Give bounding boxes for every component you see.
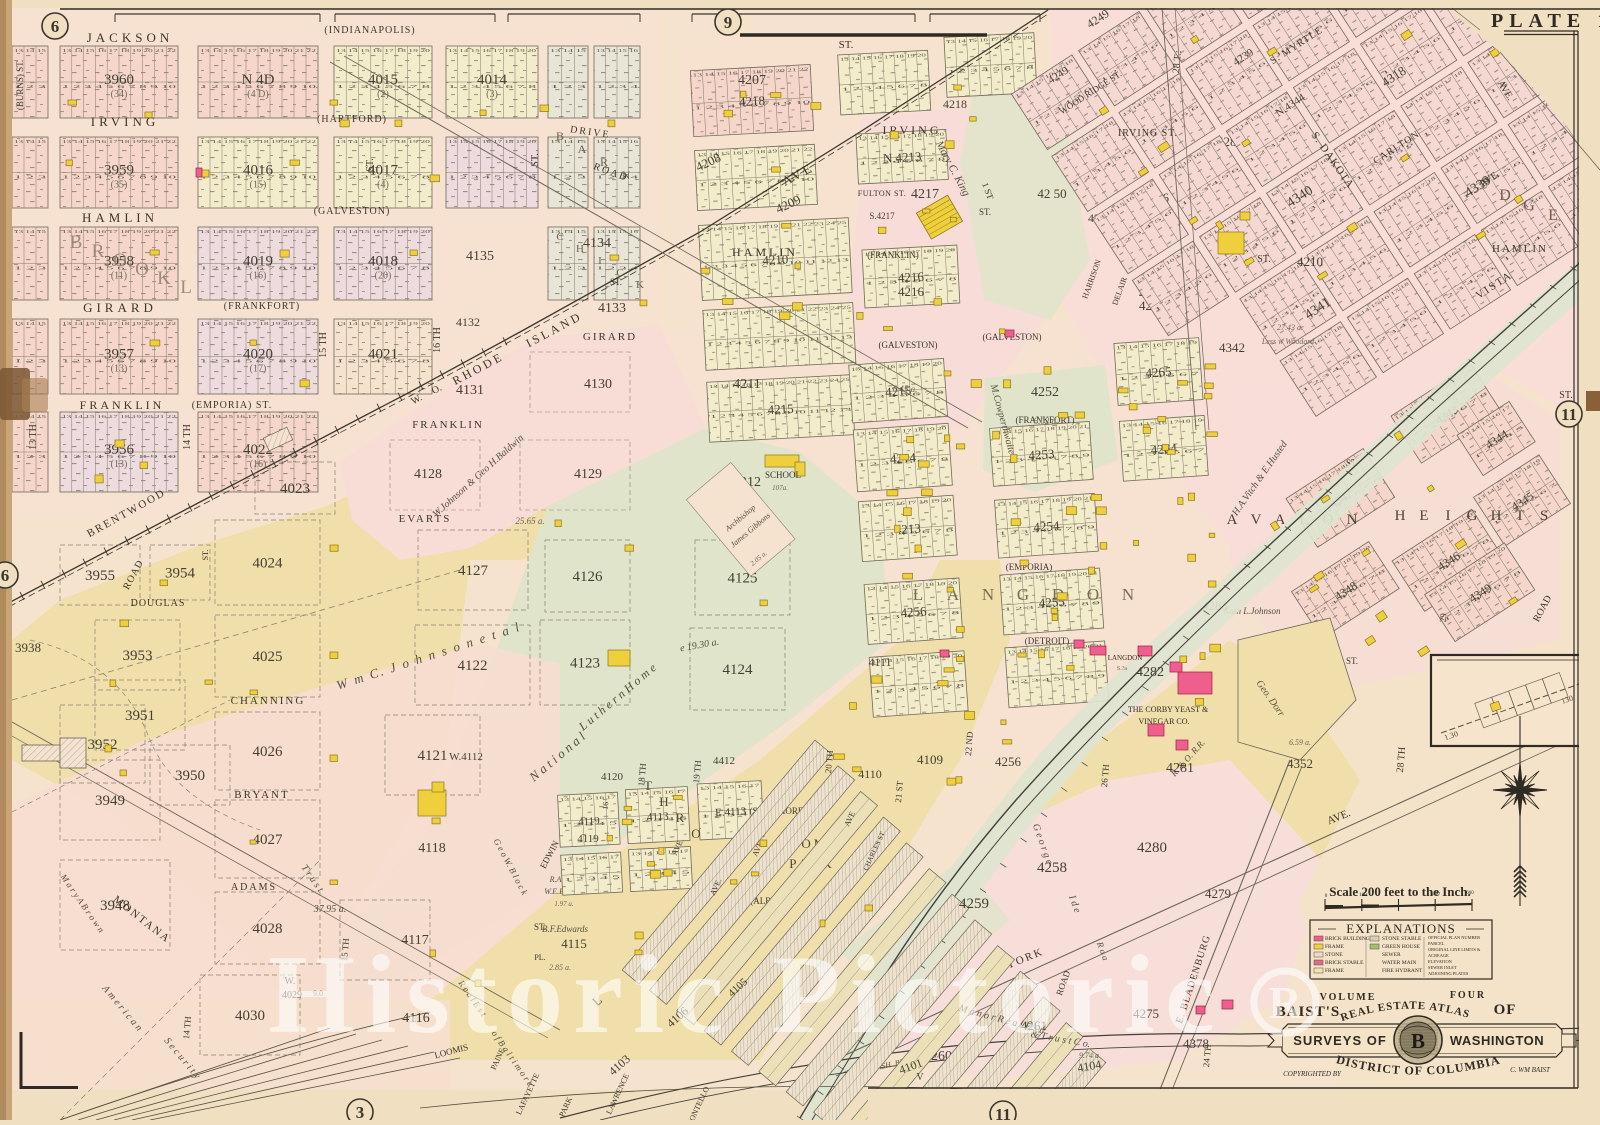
svg-text:G: G [1523,197,1535,214]
svg-text:3938: 3938 [15,640,41,655]
svg-text:C: C [616,267,623,279]
svg-text:(3): (3) [486,89,498,100]
svg-text:4132: 4132 [456,315,480,329]
svg-text:G: G [1467,508,1478,524]
svg-text:S.4217: S.4217 [869,211,895,221]
svg-text:4024: 4024 [253,556,284,572]
svg-text:S.?a: S.?a [1117,666,1128,672]
svg-text:(4 D): (4 D) [247,89,268,100]
svg-text:(15): (15) [250,180,267,191]
svg-text:ORIGINAL LINE LIMITS &: ORIGINAL LINE LIMITS & [1428,947,1481,952]
svg-text:(20): (20) [375,271,392,282]
svg-text:ADAMS: ADAMS [231,882,277,893]
svg-text:O: O [113,250,127,271]
svg-text:4280: 4280 [1137,840,1167,856]
svg-text:VOLUME: VOLUME [1320,992,1377,1003]
svg-text:S: S [1540,508,1548,524]
svg-text:L: L [180,277,192,298]
svg-text:HAMLIN: HAMLIN [1492,243,1548,255]
svg-text:4258: 4258 [1037,860,1067,876]
svg-text:O: O [691,826,700,841]
svg-text:4019: 4019 [243,254,273,270]
svg-text:BRYANT: BRYANT [234,789,289,801]
svg-text:4123: 4123 [570,656,600,672]
svg-text:IRVING ST.: IRVING ST. [1118,128,1178,139]
svg-text:4023: 4023 [280,481,310,497]
svg-text:R: R [1268,977,1302,1028]
svg-text:EVARTS: EVARTS [399,513,452,525]
svg-text:(16): (16) [250,271,267,282]
svg-text:4279: 4279 [1205,886,1231,901]
svg-text:B: B [556,129,564,143]
svg-text:(4): (4) [377,180,389,191]
svg-text:(HARTFORD): (HARTFORD) [317,114,387,125]
svg-text:EXPLANATIONS: EXPLANATIONS [1346,921,1456,936]
svg-text:100: 100 [1359,893,1367,898]
svg-text:B: B [1411,1029,1425,1053]
svg-text:42 50: 42 50 [1037,186,1066,201]
svg-text:4026: 4026 [253,744,284,760]
svg-text:(FRANKFORT): (FRANKFORT) [224,301,301,312]
svg-text:4025: 4025 [253,649,283,665]
svg-text:13 TH: 13 TH [28,424,39,450]
svg-text:6.02 a.: 6.02 a. [1034,416,1059,426]
svg-text:4018: 4018 [368,254,398,270]
svg-text:ST.: ST. [1257,254,1270,265]
svg-text:SEWER: SEWER [1382,952,1401,958]
svg-text:(35): (35) [111,180,128,191]
svg-text:O: O [1087,585,1099,604]
svg-text:4256: 4256 [900,603,927,620]
svg-text:4130: 4130 [584,377,612,392]
svg-text:DOUGLAS: DOUGLAS [131,598,186,609]
svg-text:4210: 4210 [1297,254,1323,269]
svg-text:4016: 4016 [243,163,274,179]
svg-text:HAMLIN: HAMLIN [82,210,158,225]
svg-text:16: 16 [601,801,611,810]
svg-text:I: I [1446,508,1451,524]
svg-text:4111: 4111 [868,655,891,669]
svg-text:4128: 4128 [414,467,442,482]
svg-text:4352: 4352 [1287,756,1313,771]
svg-text:3960: 3960 [104,72,134,88]
svg-text:C: C [556,231,563,243]
svg-text:21 ST: 21 ST [893,780,905,803]
svg-text:CHANNING: CHANNING [231,695,306,707]
svg-text:6: 6 [1,566,10,585]
svg-text:SURVEYS OF: SURVEYS OF [1293,1033,1387,1048]
svg-text:HAMLIN: HAMLIN [732,245,798,259]
svg-text:4027: 4027 [253,832,284,848]
svg-text:4118: 4118 [418,841,445,856]
svg-text:JACKSON: JACKSON [87,30,174,45]
svg-text:FRANKLIN: FRANKLIN [412,419,484,431]
svg-text:K: K [157,268,171,289]
svg-text:4119: 4119 [578,815,601,828]
svg-text:(DETROIT): (DETROIT) [1025,636,1070,646]
svg-text:4281: 4281 [1166,761,1194,776]
svg-text:C. WM BAIST: C. WM BAIST [1510,1066,1551,1074]
svg-text:4217: 4217 [911,187,939,202]
svg-text:4134: 4134 [583,236,611,251]
svg-text:N: N [1122,585,1134,604]
svg-text:4207: 4207 [738,73,766,88]
svg-text:37.95 a.: 37.95 a. [313,904,347,915]
svg-text:R: R [600,155,608,169]
svg-text:6.45 a.: 6.45 a. [893,384,918,394]
svg-text:ST.: ST. [1559,390,1572,401]
svg-text:O: O [135,259,149,280]
svg-text:4124: 4124 [723,662,754,678]
svg-text:R: R [92,241,105,262]
svg-text:(13): (13) [111,459,128,470]
svg-text:N.4213: N.4213 [882,149,921,166]
svg-text:K: K [636,279,644,291]
svg-text:Scale 200 feet to the Inch.: Scale 200 feet to the Inch. [1329,884,1471,899]
svg-text:14 TH: 14 TH [181,1015,193,1039]
svg-text:9: 9 [724,13,733,32]
svg-text:26 TH: 26 TH [1099,763,1111,787]
svg-text:THE CORBY YEAST &: THE CORBY YEAST & [1128,705,1209,714]
svg-text:3948: 3948 [100,898,130,914]
svg-text:H: H [659,794,668,809]
svg-text:PLATE 10: PLATE 10 [1491,10,1600,32]
svg-text:3: 3 [356,1103,365,1120]
svg-text:(INDIANAPOLIS): (INDIANAPOLIS) [324,25,415,36]
svg-text:ST.: ST. [839,39,854,51]
svg-text:4014: 4014 [477,72,508,88]
svg-text:11: 11 [1561,405,1577,424]
svg-text:T: T [1515,508,1524,524]
svg-text:FULTON ST.: FULTON ST. [858,189,906,198]
svg-text:BRICK STABLE: BRICK STABLE [1325,960,1364,966]
svg-text:(GALVESTON): (GALVESTON) [878,340,937,350]
svg-text:L: L [913,585,923,604]
svg-text:WATER MAIN: WATER MAIN [1382,960,1416,966]
svg-text:4254: 4254 [1033,518,1060,535]
svg-text:ST.: ST. [979,207,991,217]
svg-text:400: 400 [1432,892,1440,897]
svg-text:N: N [1347,512,1358,528]
svg-text:4122: 4122 [458,658,488,674]
svg-text:(FRANKLIN): (FRANKLIN) [867,250,919,260]
svg-text:FRAME: FRAME [1325,968,1345,974]
svg-text:15 TH: 15 TH [318,332,329,358]
svg-text:GREEN HOUSE: GREEN HOUSE [1382,944,1421,950]
svg-text:W.4112: W.4112 [449,751,483,763]
svg-text:GIRARD: GIRARD [583,331,637,343]
svg-text:20 TH: 20 TH [823,749,835,773]
svg-text:ST.: ST. [201,550,210,561]
svg-text:4129: 4129 [574,467,602,482]
svg-text:ST.: ST. [365,158,376,171]
svg-text:I: I [598,255,602,267]
svg-text:4218: 4218 [943,97,967,111]
svg-text:B: B [70,232,83,253]
svg-text:COPYRIGHTED BY: COPYRIGHTED BY [1283,1070,1342,1078]
svg-text:4216: 4216 [898,284,925,299]
svg-text:(17): (17) [250,364,267,375]
svg-text:STONE: STONE [1325,952,1343,958]
svg-text:14 TH: 14 TH [182,424,193,450]
svg-text:4030: 4030 [235,1008,265,1024]
svg-text:E: E [1419,508,1428,524]
svg-text:4265: 4265 [1145,364,1172,381]
svg-text:4110: 4110 [858,767,882,781]
svg-text:28 TH: 28 TH [1395,747,1408,774]
svg-text:ADJOINING PLATES: ADJOINING PLATES [1428,971,1469,976]
svg-text:4211: 4211 [733,377,760,392]
svg-text:PARCEL: PARCEL [1428,941,1445,946]
svg-text:(34): (34) [111,89,128,100]
svg-text:N: N [982,585,994,604]
svg-text:4133: 4133 [598,301,626,316]
svg-text:4109: 4109 [917,752,943,767]
svg-text:(BURNS) ST.: (BURNS) ST. [15,60,25,110]
svg-text:6: 6 [51,17,60,36]
svg-text:SEWER INLET: SEWER INLET [1428,965,1457,970]
svg-text:H: H [1395,508,1406,524]
svg-text:4412: 4412 [713,755,735,767]
svg-text:4119: 4119 [577,833,599,845]
svg-text:28 T.:: 28 T.: [1171,50,1184,74]
svg-text:4127: 4127 [458,563,489,579]
svg-text:G: G [1017,585,1029,604]
svg-text:LANGDON: LANGDON [1108,654,1143,662]
svg-text:4131: 4131 [456,383,484,398]
svg-text:4021: 4021 [368,347,398,363]
svg-text:4282: 4282 [1136,665,1164,680]
svg-text:29: 29 [1438,612,1449,622]
svg-text:ELEVATION: ELEVATION [1428,959,1453,964]
svg-text:(13): (13) [111,364,128,375]
svg-text:3953: 3953 [123,648,153,664]
svg-text:6.59 a.: 6.59 a. [1289,738,1311,747]
svg-text:(EMPORIA): (EMPORIA) [1006,562,1053,572]
svg-text:27.43 a.: 27.43 a. [1277,323,1303,332]
svg-text:FOUR: FOUR [1450,990,1486,1001]
svg-text:OF: OF [1494,1002,1517,1018]
svg-text:GIRARD: GIRARD [83,300,157,315]
svg-text:T: T [644,778,652,793]
svg-text:3955: 3955 [85,568,115,584]
svg-text:R: R [676,810,685,825]
svg-text:V: V [1251,512,1262,528]
svg-text:A: A [578,142,587,156]
svg-text:N 4D: N 4D [242,72,275,88]
svg-text:4259: 4259 [959,896,989,912]
svg-text:3957: 3957 [104,347,135,363]
svg-text:SCHOOL: SCHOOL [765,470,801,480]
svg-text:N: N [622,168,631,182]
svg-text:BRICK BUILDING: BRICK BUILDING [1325,936,1370,942]
svg-text:16 TH: 16 TH [432,327,443,353]
svg-text:107a.: 107a. [772,484,788,492]
svg-text:(EMPORIA) ST.: (EMPORIA) ST. [192,400,273,411]
svg-text:D: D [1499,187,1511,204]
svg-text:3952: 3952 [88,737,118,753]
svg-text:OFFICIAL PLAN NUMBER: OFFICIAL PLAN NUMBER [1428,935,1480,940]
svg-text:ACREAGE: ACREAGE [1428,953,1449,958]
svg-text:FIRE HYDRANT: FIRE HYDRANT [1382,968,1423,974]
svg-text:FRAME: FRAME [1325,944,1345,950]
svg-text:4015: 4015 [368,72,398,88]
svg-text:4135: 4135 [466,249,494,264]
svg-text:ST.: ST. [1346,656,1358,666]
svg-text:E.4113: E.4113 [715,805,747,819]
svg-text:3950: 3950 [175,768,205,784]
svg-text:E: E [1548,207,1558,224]
svg-text:(GALVESTON): (GALVESTON) [314,206,391,217]
svg-text:STONE STABLE: STONE STABLE [1382,936,1422,942]
svg-text:4120: 4120 [601,771,624,783]
svg-text:H: H [576,243,584,255]
svg-text:11: 11 [995,1105,1011,1120]
svg-text:Less w Woodard: Less w Woodard [1261,337,1315,346]
svg-text:4256: 4256 [995,754,1022,769]
svg-text:(11): (11) [111,271,127,282]
svg-text:4215: 4215 [767,401,794,417]
svg-text:WASHINGTON: WASHINGTON [1450,1033,1544,1048]
svg-text:3954: 3954 [165,566,196,582]
svg-text:V: V [916,1072,924,1083]
svg-text:4252: 4252 [1031,385,1059,400]
svg-text:3959: 3959 [104,163,134,179]
svg-text:1.97 a.: 1.97 a. [554,900,574,908]
svg-text:ST.: ST. [530,153,541,166]
svg-text:4216: 4216 [898,269,925,285]
svg-text:25.65 a.: 25.65 a. [515,516,544,526]
svg-text:4020: 4020 [243,347,273,363]
svg-text:H: H [1491,508,1502,524]
svg-text:4253: 4253 [1028,446,1055,463]
svg-text:3951: 3951 [125,708,155,724]
svg-text:FRANKLIN: FRANKLIN [80,398,165,412]
svg-text:19 TH: 19 TH [691,759,703,783]
svg-text:600: 600 [1466,891,1474,896]
svg-text:4113: 4113 [647,811,670,824]
svg-text:Historic Pictoric: Historic Pictoric [268,933,1225,1057]
svg-text:4121: 4121 [418,748,448,764]
svg-text:3949: 3949 [95,793,125,809]
svg-text:4342: 4342 [1219,340,1245,355]
svg-text:4126: 4126 [573,569,604,585]
